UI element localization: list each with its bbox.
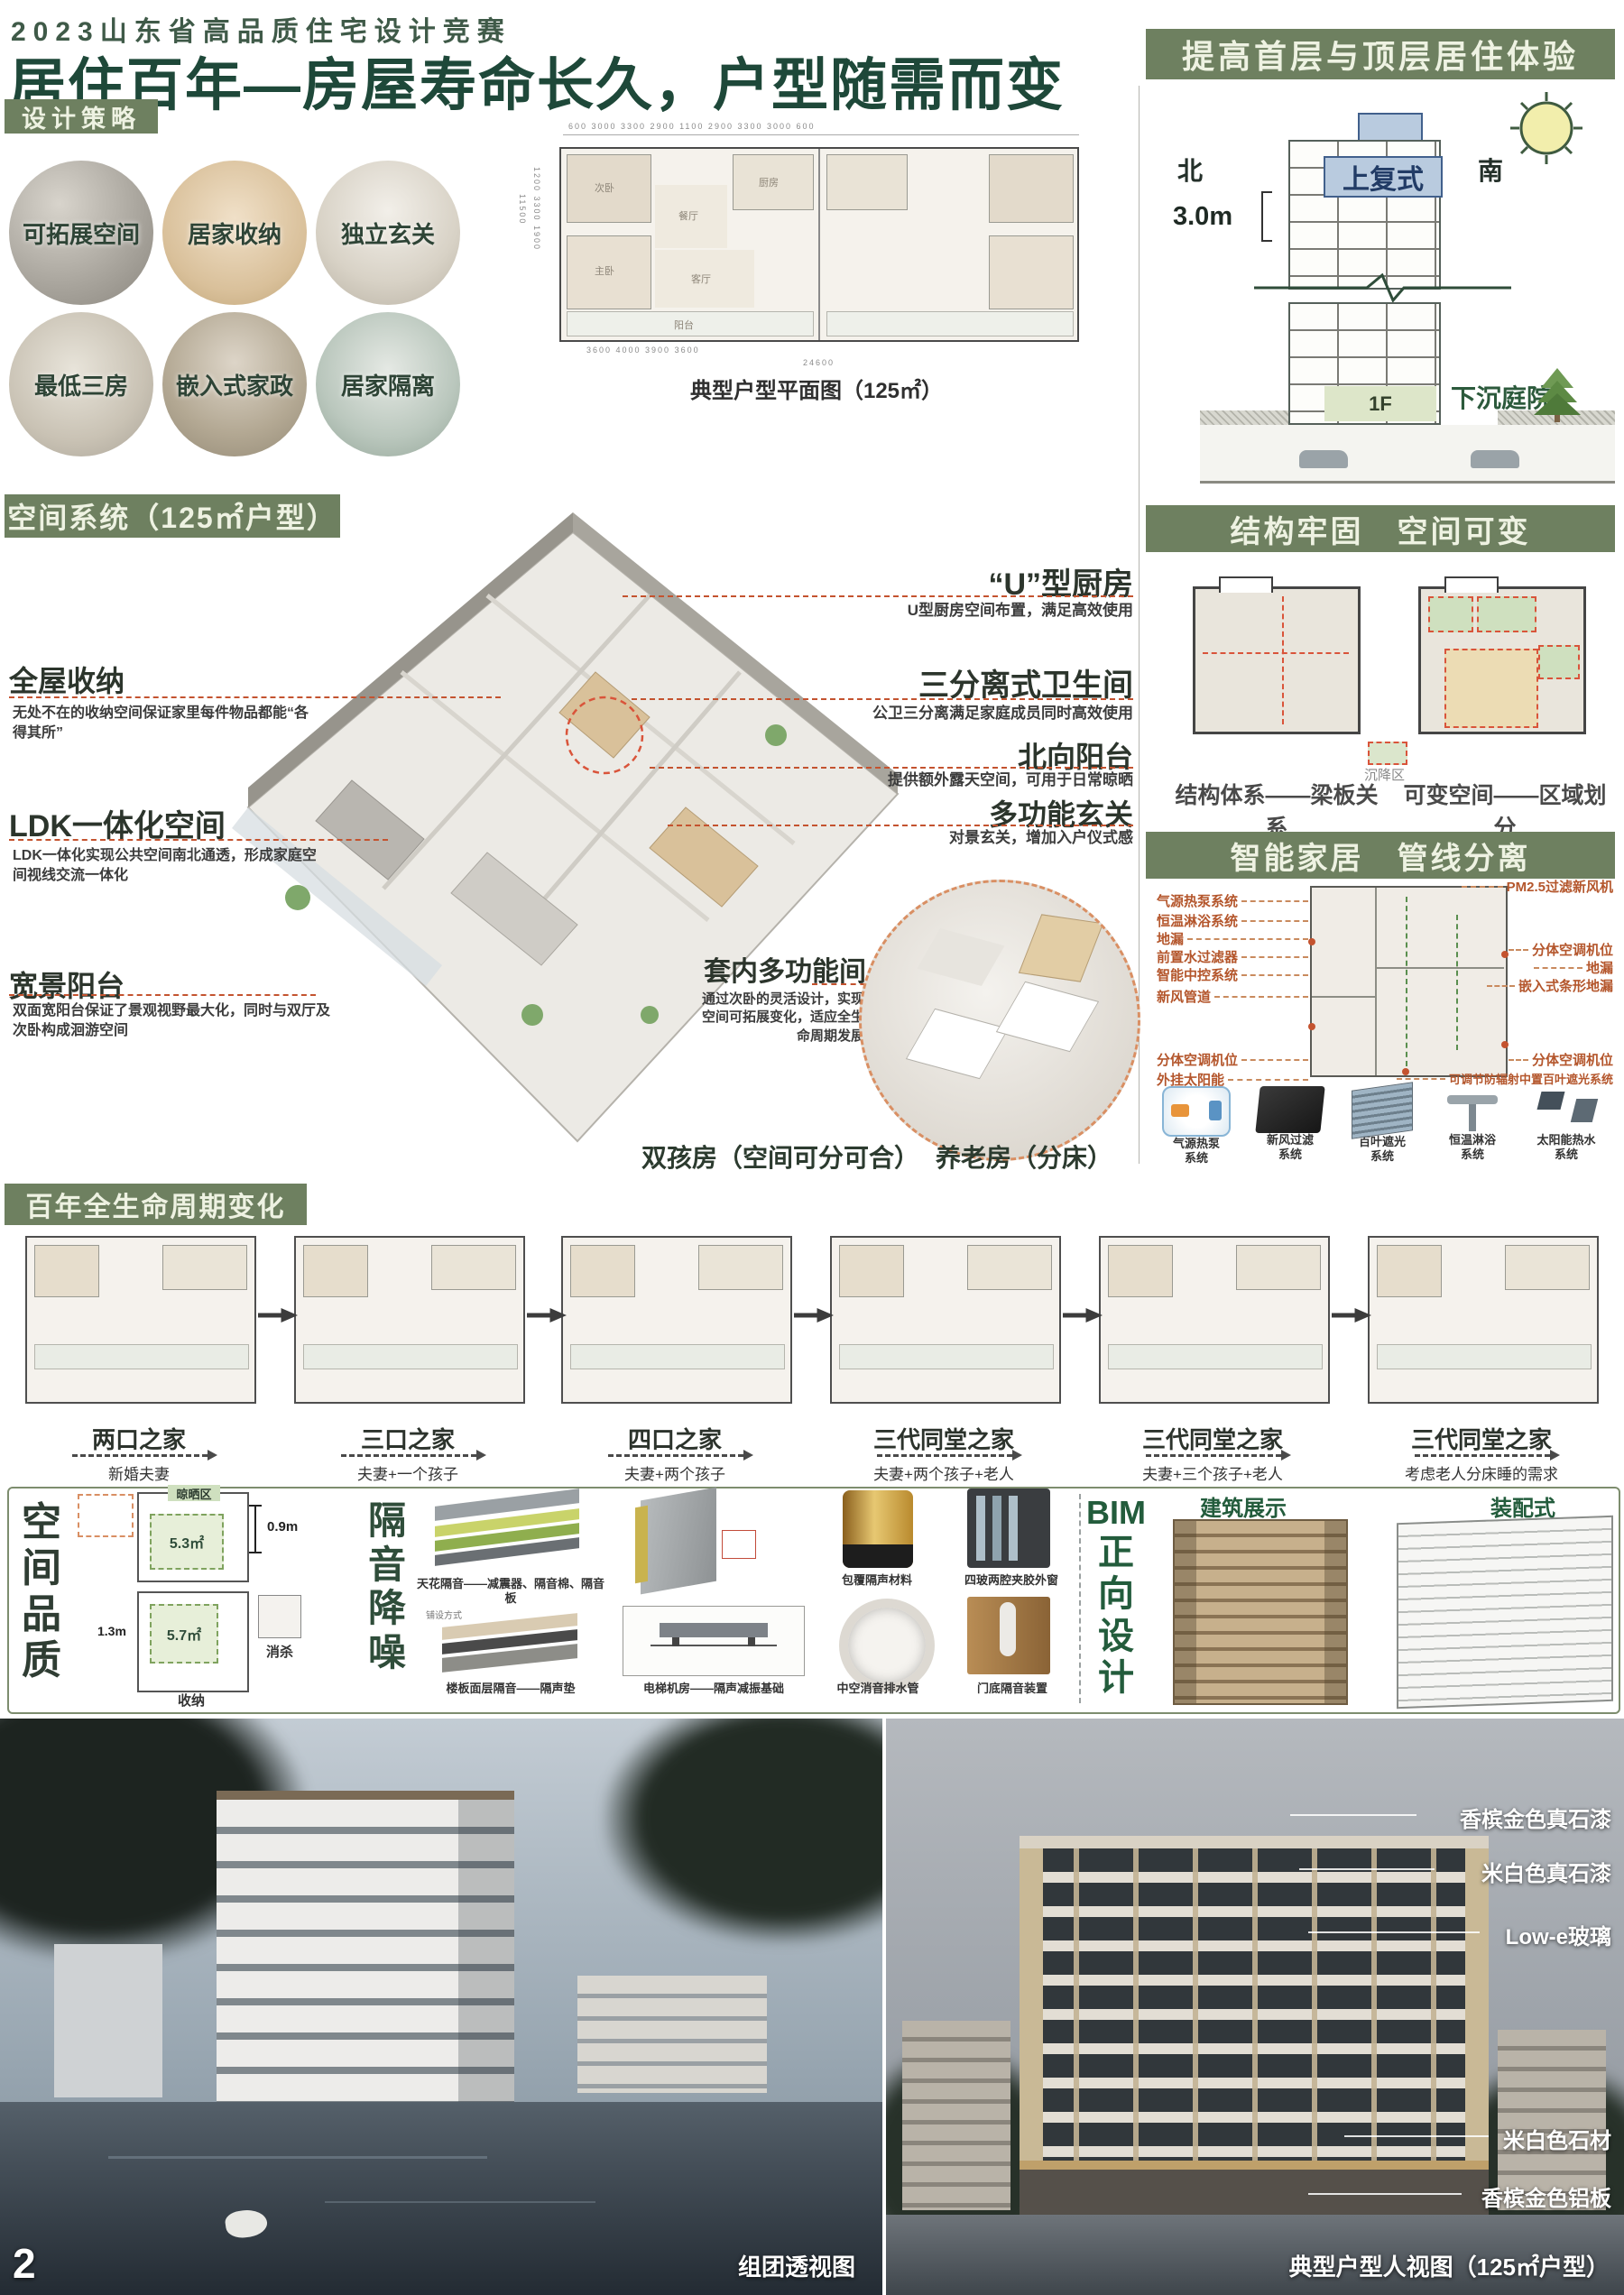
shower-icon <box>1440 1086 1505 1133</box>
main-tower <box>1020 1836 1489 2173</box>
typical-plan-figure: 600 3000 3300 2900 1100 2900 3300 3000 6… <box>505 95 1128 392</box>
callout-desc: 双面宽阳台保证了景观视野最大化，同时与双厅及次卧构成洄游空间 <box>13 1001 333 1040</box>
system-caption: 系统 <box>1339 1149 1426 1164</box>
dim-tick <box>249 1552 262 1553</box>
background-building <box>54 1944 162 2097</box>
fresh-air-icon <box>1255 1086 1324 1133</box>
leader-line <box>9 696 501 698</box>
tree-silhouette <box>603 1719 882 1944</box>
solar-icon <box>1534 1086 1599 1133</box>
plan-balcony <box>34 1344 249 1369</box>
reflection <box>108 2156 487 2159</box>
stage-arrow-dashed <box>608 1454 743 1457</box>
pipe-jacket <box>843 1544 913 1568</box>
stage-title: 三代同堂之家 <box>1368 1422 1595 1455</box>
bim-building-render <box>1173 1519 1348 1705</box>
sun-icon <box>1509 90 1584 166</box>
room-label: 次卧 <box>595 180 614 195</box>
smart-label: 新风管道 <box>1157 987 1308 1006</box>
smart-label-text: 地漏 <box>1586 958 1613 977</box>
tree-icon <box>1534 368 1581 422</box>
lifecycle-plan-5 <box>1099 1236 1330 1404</box>
material-callout: Low-e玻璃 <box>1506 1919 1611 1950</box>
system-solar: 太阳能热水 系统 <box>1519 1086 1613 1161</box>
smart-label: 嵌入式条形地漏 <box>1487 976 1613 995</box>
strategy-label: 嵌入式家政 <box>176 368 293 401</box>
fixture-dot <box>1501 1041 1509 1048</box>
smart-label-text: 前置水过滤器 <box>1157 947 1238 966</box>
wall <box>1375 888 1377 1075</box>
caption-floor: 楼板面层隔音——隔声垫 <box>420 1682 601 1696</box>
plan-balcony <box>570 1344 785 1369</box>
icon-part <box>1537 1092 1565 1110</box>
stage-sub: 夫妻+三个孩子+老人 <box>1099 1461 1326 1484</box>
storage-area-value: 5.7㎡ <box>150 1604 218 1664</box>
stage-title: 三代同堂之家 <box>1099 1422 1326 1455</box>
smart-label-text: 分体空调机位 <box>1157 1050 1238 1069</box>
stage-arrow-dashed <box>341 1454 476 1457</box>
lifecycle-plan-2 <box>294 1236 525 1404</box>
drying-area-tag: 晾晒区 <box>168 1485 220 1501</box>
callout-desc: 公卫三分离满足家庭成员同时高效使用 <box>790 704 1133 724</box>
render-eye-level-view: 香槟金色真石漆 米白色真石漆 Low-e玻璃 米白色石材 香槟金色铝板 典型户型… <box>886 1719 1624 2295</box>
wall-section-figure <box>632 1490 758 1597</box>
isolator <box>672 1637 679 1646</box>
heading-char: 音 <box>368 1544 406 1588</box>
drying-area-value: 5.3㎡ <box>150 1514 224 1570</box>
strategy-label: 居家收纳 <box>188 217 281 250</box>
callout-leader <box>1290 1814 1416 1816</box>
room-dining: 餐厅 <box>655 185 727 248</box>
smart-label-text: 恒温淋浴系统 <box>1157 911 1238 930</box>
isolator <box>748 1637 755 1646</box>
fixed-zone <box>1477 596 1536 632</box>
smart-label: 可调节防辐射中置百叶遮光系统 <box>1397 1070 1613 1087</box>
caption-elevator: 电梯机房——隔声减振基础 <box>619 1682 808 1696</box>
callout-desc: 无处不在的收纳空间保证家里每件物品都能“各得其所” <box>13 704 315 742</box>
smart-label-text: 新风管道 <box>1157 987 1211 1006</box>
section-heading-smart-home: 智能家居 管线分离 <box>1146 832 1615 879</box>
structure-plan-beams <box>1193 586 1361 734</box>
dim-tick <box>249 1505 262 1507</box>
room-bedroom2-mirror <box>989 154 1074 223</box>
plan-dim-left-total: 11500 <box>518 194 527 225</box>
inertia-base <box>660 1623 768 1637</box>
duplex-label: 上复式 <box>1324 156 1443 198</box>
room-bedroom2: 次卧 <box>567 154 651 223</box>
disinfect-plan <box>258 1595 301 1638</box>
legend-swatch <box>1368 742 1407 765</box>
typical-plan-caption: 典型户型平面图（125㎡） <box>505 373 1128 404</box>
stage-sub: 夫妻+两个孩子+老人 <box>830 1461 1057 1484</box>
heading-char: 空 <box>22 1499 61 1545</box>
door-seal-figure <box>967 1597 1050 1674</box>
smart-home-plan <box>1310 886 1508 1077</box>
material-callout: 香槟金色铝板 <box>1481 2180 1611 2212</box>
plan-room <box>570 1245 635 1297</box>
pipe-line <box>1456 915 1458 1050</box>
north-label: 北 <box>1177 152 1203 188</box>
heading-char: BIM <box>1086 1494 1146 1532</box>
room-label: 餐厅 <box>678 208 698 223</box>
laying-label: 铺设方式 <box>426 1608 462 1621</box>
pipe-line <box>1406 897 1407 1066</box>
plan-dims-bottom: 3600 4000 3900 3600 <box>586 346 1056 355</box>
glass-pane <box>992 1496 1001 1561</box>
system-caption: 气源热泵 <box>1153 1137 1240 1151</box>
pipe-wrap-figure <box>843 1490 913 1568</box>
wall <box>1375 967 1504 969</box>
smart-label-text: 嵌入式条形地漏 <box>1518 976 1613 995</box>
wardrobe-shape <box>1019 914 1103 982</box>
heading-char: 向 <box>1098 1573 1134 1615</box>
system-caption: 系统 <box>1247 1147 1333 1162</box>
heading-char: 间 <box>22 1545 61 1591</box>
glass-pane <box>976 1496 985 1561</box>
dim-line <box>563 134 1079 135</box>
stage-title: 三口之家 <box>294 1422 521 1455</box>
heading-bim: BIM 正 向 设 计 <box>1088 1494 1144 1699</box>
material-callout: 米白色石材 <box>1503 2123 1611 2154</box>
callout-leader <box>1299 1868 1435 1870</box>
icon-part <box>1171 1104 1189 1117</box>
render-caption-right: 典型户型人视图（125㎡户型） <box>1289 2249 1610 2282</box>
plan-room <box>431 1245 516 1290</box>
plan-dims-left: 1200 3300 1900 <box>532 167 541 251</box>
basement-garage <box>1200 425 1615 484</box>
stage-title: 两口之家 <box>25 1422 253 1455</box>
shade <box>1324 1521 1346 1703</box>
heading-char: 正 <box>1098 1532 1134 1573</box>
system-caption: 恒温淋浴 <box>1429 1133 1516 1147</box>
quality-plan-storage: 5.7㎡ <box>137 1591 249 1692</box>
heading-space-quality: 空 间 品 质 <box>16 1499 67 1683</box>
smart-label: 前置水过滤器 <box>1157 947 1308 966</box>
plan-room <box>34 1245 99 1297</box>
heading-char: 品 <box>22 1591 61 1637</box>
plan-room <box>698 1245 783 1290</box>
smart-label-text: 智能中控系统 <box>1157 965 1238 984</box>
bottom-band <box>7 1487 1620 1714</box>
system-caption: 系统 <box>1429 1147 1516 1162</box>
label-twin-kids-room: 双孩房（空间可分可合） <box>632 1138 929 1175</box>
plan-balcony <box>303 1344 518 1369</box>
plan-room <box>1236 1245 1321 1290</box>
section-heading-design-strategy: 设计策略 <box>5 99 158 134</box>
unit-divider-wall <box>818 149 820 340</box>
system-caption: 新风过滤 <box>1247 1133 1333 1147</box>
bed-shape <box>996 982 1099 1053</box>
shade <box>1175 1521 1196 1703</box>
annotation-box <box>722 1530 756 1559</box>
dimension-bracket <box>1261 191 1272 242</box>
callout-title-storage: 全屋收纳 <box>9 659 125 700</box>
leader-line <box>668 825 1133 826</box>
callout-desc: 提供额外露天空间，可用于日常晾晒 <box>808 770 1133 791</box>
band-divider <box>1079 1494 1081 1703</box>
heading-acoustic: 隔 音 降 噪 <box>363 1499 411 1675</box>
stage-arrow-dashed <box>1146 1454 1281 1457</box>
flex-room-inset <box>859 880 1140 1161</box>
blinds-icon <box>1352 1082 1413 1139</box>
icon-part <box>1209 1101 1222 1120</box>
smart-label: PM2.5过滤新风机 <box>1462 877 1613 896</box>
heading-char: 降 <box>368 1587 406 1631</box>
ground-slab-left <box>1200 410 1288 425</box>
caption-ceiling: 天花隔音——减震器、隔音棉、隔音板 <box>413 1577 608 1605</box>
car-shape <box>1471 450 1519 468</box>
smart-label: 分体空调机位 <box>1157 1050 1308 1069</box>
room-master-mirror <box>989 235 1074 309</box>
disinfect-label: 消杀 <box>260 1642 300 1661</box>
smart-label-text: 气源热泵系统 <box>1157 891 1238 910</box>
callout-desc: 通过次卧的灵活设计，实现空间可拓展变化，适应全生命周期发展 <box>691 991 864 1046</box>
system-blinds: 百叶遮光 系统 <box>1339 1086 1426 1163</box>
render-caption-left: 组团透视图 <box>738 2249 855 2282</box>
callout-title-balcony: 宽景阳台 <box>9 963 125 1005</box>
stage-sub: 夫妻+一个孩子 <box>294 1461 521 1484</box>
plan-balcony <box>839 1344 1054 1369</box>
bed-shape <box>906 1009 1009 1080</box>
frame-column <box>1465 1848 1489 2173</box>
smart-label: 分体空调机位 <box>1509 940 1613 959</box>
smart-label: 分体空调机位 <box>1509 1050 1613 1069</box>
plan-room <box>839 1245 904 1297</box>
section-heading-lifecycle: 百年全生命周期变化 <box>5 1184 307 1225</box>
plan-room <box>162 1245 247 1290</box>
beam-line <box>1203 652 1349 654</box>
secondary-building <box>577 1976 767 2093</box>
section-heading-top-bottom-experience: 提高首层与顶层居住体验 <box>1146 29 1615 79</box>
leader-line <box>650 767 1133 769</box>
beam-line <box>1282 596 1284 724</box>
caption-pipe-wrap: 包覆隔声材料 <box>814 1573 940 1588</box>
first-floor-label: 1F <box>1324 386 1436 421</box>
material-callout: 米白色真石漆 <box>1481 1856 1611 1887</box>
smart-label-text: 分体空调机位 <box>1532 1050 1613 1069</box>
progress-arrow-icon <box>1063 1308 1103 1323</box>
fixed-zone <box>1428 596 1473 632</box>
progress-arrow-icon <box>258 1308 298 1323</box>
seal-strip <box>1000 1602 1016 1656</box>
wall-slab <box>641 1488 716 1595</box>
room-label: 厨房 <box>759 175 779 189</box>
stage-sub: 夫妻+两个孩子 <box>561 1461 789 1484</box>
bim-label-architecture: 建筑展示 <box>1200 1490 1287 1522</box>
smart-label: 恒温淋浴系统 <box>1157 911 1308 930</box>
leader-line <box>9 839 388 841</box>
shade <box>458 1800 514 2143</box>
system-fresh-air: 新风过滤 系统 <box>1247 1086 1333 1161</box>
smart-label-text: 地漏 <box>1157 929 1184 948</box>
system-caption: 系统 <box>1153 1151 1240 1166</box>
south-label: 南 <box>1478 152 1503 188</box>
plan-dims-top: 600 3000 3300 2900 1100 2900 3300 3000 6… <box>568 122 1074 131</box>
progress-arrow-icon <box>1332 1308 1371 1323</box>
wall <box>1312 996 1375 998</box>
section-heading-structure: 结构牢固 空间可变 <box>1146 505 1615 552</box>
system-heat-pump: 气源热泵 系统 <box>1153 1086 1240 1165</box>
strategy-item-independent-foyer: 独立玄关 <box>316 161 460 305</box>
room-master: 主卧 <box>567 235 651 309</box>
insulation <box>635 1506 648 1583</box>
strategy-label: 可拓展空间 <box>23 217 140 250</box>
icon-part <box>1447 1095 1498 1104</box>
fixture-dot <box>1308 938 1315 945</box>
plan-room <box>303 1245 368 1297</box>
storage-label: 收纳 <box>137 1691 245 1710</box>
table-shape <box>918 928 1005 986</box>
plan-notch <box>1219 576 1273 593</box>
system-shower: 恒温淋浴 系统 <box>1429 1086 1516 1161</box>
floor-layers-figure: 铺设方式 <box>426 1608 594 1676</box>
plan-dim-bottom-total: 24600 <box>803 358 835 367</box>
reflection <box>325 2201 595 2203</box>
strategy-label: 居家隔离 <box>341 368 435 401</box>
lifecycle-plan-4 <box>830 1236 1061 1404</box>
lifecycle-plan-3 <box>561 1236 792 1404</box>
room-balcony-mirror <box>826 311 1074 336</box>
stage-arrow-dashed <box>72 1454 208 1457</box>
strategy-item-expandable-space: 可拓展空间 <box>9 161 153 305</box>
drain-pipe-figure <box>839 1599 935 1692</box>
callout-leader <box>1308 2193 1462 2195</box>
tower-base <box>1020 2161 1489 2222</box>
callout-desc: 对景玄关，增加入户仪式感 <box>863 828 1133 849</box>
dim-value: 0.9m <box>267 1519 298 1535</box>
heading-char: 计 <box>1098 1657 1134 1699</box>
stage-title: 三代同堂之家 <box>830 1422 1057 1455</box>
smart-label: 智能中控系统 <box>1157 965 1308 984</box>
room-kitchen-mirror <box>826 154 908 210</box>
stage-sub: 新婚夫妻 <box>25 1461 253 1484</box>
deer-sculpture <box>224 2207 269 2240</box>
icon-part <box>1469 1104 1476 1131</box>
fixture-dot <box>1501 951 1509 958</box>
room-label: 客厅 <box>691 272 711 286</box>
variable-zone <box>1444 649 1538 728</box>
strategy-label: 独立玄关 <box>341 217 435 250</box>
main-building <box>217 1791 514 2143</box>
side-building <box>902 2021 1010 2210</box>
room-living: 客厅 <box>655 250 754 308</box>
strategy-label: 最低三房 <box>34 368 128 401</box>
leader-line <box>9 994 316 996</box>
leader-line <box>623 595 1133 597</box>
stage-title: 四口之家 <box>561 1422 789 1455</box>
plan-notch <box>1444 576 1499 593</box>
strategy-item-home-storage: 居家收纳 <box>162 161 307 305</box>
render-cluster-view: 组团透视图 2 <box>0 1719 882 2295</box>
plan-balcony <box>1108 1344 1323 1369</box>
smart-label-text: 分体空调机位 <box>1532 940 1613 959</box>
smart-label-text: 可调节防辐射中置百叶遮光系统 <box>1449 1070 1613 1087</box>
progress-arrow-icon <box>794 1308 834 1323</box>
glass-pane <box>1009 1496 1018 1561</box>
heading-char: 隔 <box>368 1499 406 1544</box>
callout-desc: LDK一体化实现公共空间南北通透，形成家庭空间视线交流一体化 <box>13 846 324 885</box>
fixture-dot <box>1308 1023 1315 1030</box>
icon-part <box>1571 1099 1598 1122</box>
callout-leader <box>1344 2135 1489 2137</box>
callout-leader <box>1308 1931 1480 1933</box>
room-balcony: 阳台 <box>567 311 814 336</box>
floor-height-label: 3.0m <box>1173 202 1232 232</box>
line <box>651 1645 777 1646</box>
plan-room <box>967 1245 1052 1290</box>
strategy-item-min-three-rooms: 最低三房 <box>9 312 153 456</box>
smart-label-text: PM2.5过滤新风机 <box>1507 877 1613 896</box>
window-figure <box>967 1489 1050 1568</box>
frame-column <box>1020 1848 1043 2173</box>
smart-label: 气源热泵系统 <box>1157 891 1308 910</box>
quality-plan-drying: 晾晒区 5.3㎡ <box>137 1492 249 1582</box>
bim-prefab-render <box>1397 1516 1613 1709</box>
heading-char: 质 <box>22 1637 61 1683</box>
strategy-item-embedded-housekeeping: 嵌入式家政 <box>162 312 307 456</box>
room-label: 主卧 <box>595 263 614 278</box>
caption-window: 四玻两腔夹胶外窗 <box>944 1573 1079 1588</box>
room-kitchen: 厨房 <box>733 154 814 210</box>
stage-arrow-dashed <box>877 1454 1012 1457</box>
label-elderly-room: 养老房（分床） <box>920 1138 1128 1175</box>
callout-desc: U型厨房空间布置，满足高效使用 <box>826 601 1133 622</box>
heat-pump-icon <box>1162 1086 1231 1137</box>
caption-drain: 中空消音排水管 <box>810 1682 946 1696</box>
system-caption: 太阳能热水 <box>1519 1133 1613 1147</box>
stage-sub: 考虑老人分床睡的需求 <box>1368 1461 1595 1484</box>
page-number: 2 <box>13 2239 36 2288</box>
ceiling-layers-figure <box>426 1494 594 1573</box>
elevator-base-figure <box>623 1606 805 1676</box>
dim-value: 1.3m <box>97 1624 126 1638</box>
quality-mini-sketch <box>78 1494 134 1537</box>
heading-char: 噪 <box>368 1631 406 1675</box>
lifecycle-plan-6 <box>1368 1236 1599 1404</box>
plan-room <box>1377 1245 1442 1297</box>
smart-label: 地漏 <box>1157 929 1308 948</box>
strategy-item-home-isolation: 居家隔离 <box>316 312 460 456</box>
caption-door: 门底隔音装置 <box>949 1682 1075 1696</box>
fixed-zone <box>1538 645 1580 679</box>
stage-arrow-dashed <box>1415 1454 1550 1457</box>
plan-room <box>1505 1245 1590 1290</box>
system-caption: 系统 <box>1519 1147 1613 1162</box>
smart-label: 地漏 <box>1534 958 1613 977</box>
plan-balcony <box>1377 1344 1592 1369</box>
dim-bar <box>254 1505 256 1552</box>
car-shape <box>1299 450 1348 468</box>
structure-plan-zones <box>1418 586 1586 734</box>
material-callout: 香槟金色真石漆 <box>1460 1802 1611 1833</box>
poster: 2023山东省高品质住宅设计竞赛 居住百年—房屋寿命长久，户型随需而变 设计策略… <box>0 0 1624 2295</box>
leader-line <box>632 698 1133 700</box>
lifecycle-plan-1 <box>25 1236 256 1404</box>
plan-room <box>1108 1245 1173 1297</box>
room-label: 阳台 <box>674 318 694 332</box>
section-break-line <box>1254 273 1511 302</box>
heading-char: 设 <box>1098 1616 1134 1657</box>
floor-plan: 次卧 厨房 餐厅 客厅 主卧 阳台 <box>559 147 1079 342</box>
